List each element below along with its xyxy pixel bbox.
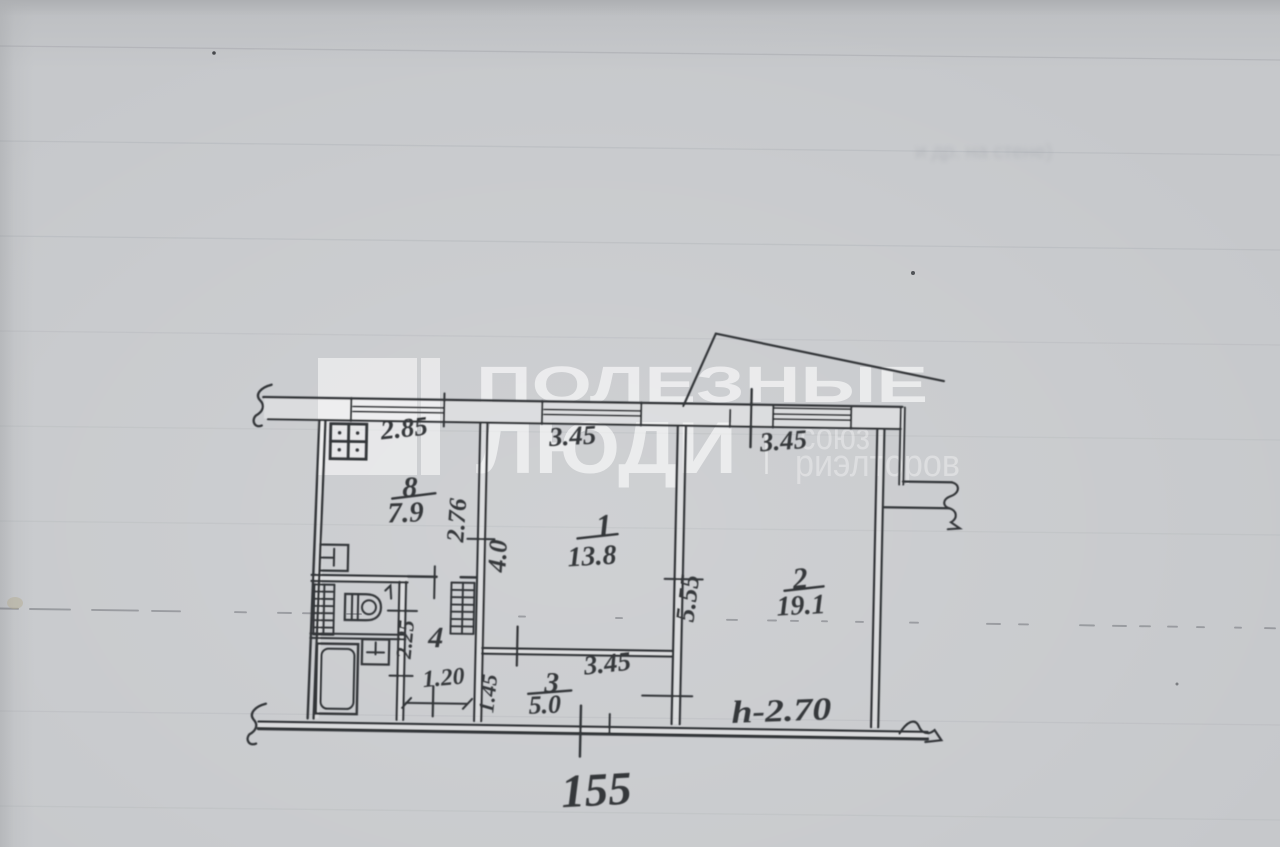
svg-text:5.55: 5.55: [669, 573, 705, 624]
svg-text:4.0: 4.0: [482, 539, 513, 574]
svg-text:2.76: 2.76: [442, 497, 472, 544]
svg-text:7.9: 7.9: [387, 496, 424, 529]
svg-text:19.1: 19.1: [776, 589, 826, 623]
svg-text:2.25: 2.25: [391, 619, 419, 660]
svg-text:1: 1: [595, 507, 613, 544]
svg-text:1.45: 1.45: [473, 673, 502, 714]
svg-text:3.45: 3.45: [758, 424, 808, 457]
svg-text:155: 155: [560, 763, 633, 819]
svg-text:и др. на стене): и др. на стене): [915, 141, 1052, 163]
svg-text:13.8: 13.8: [567, 540, 617, 574]
svg-text:1.20: 1.20: [422, 664, 466, 694]
svg-text:3.45: 3.45: [581, 646, 632, 681]
svg-text:4: 4: [427, 621, 444, 654]
svg-text:3.45: 3.45: [547, 420, 597, 453]
svg-text:2.85: 2.85: [378, 411, 429, 446]
svg-text:h-2.70: h-2.70: [731, 690, 832, 730]
